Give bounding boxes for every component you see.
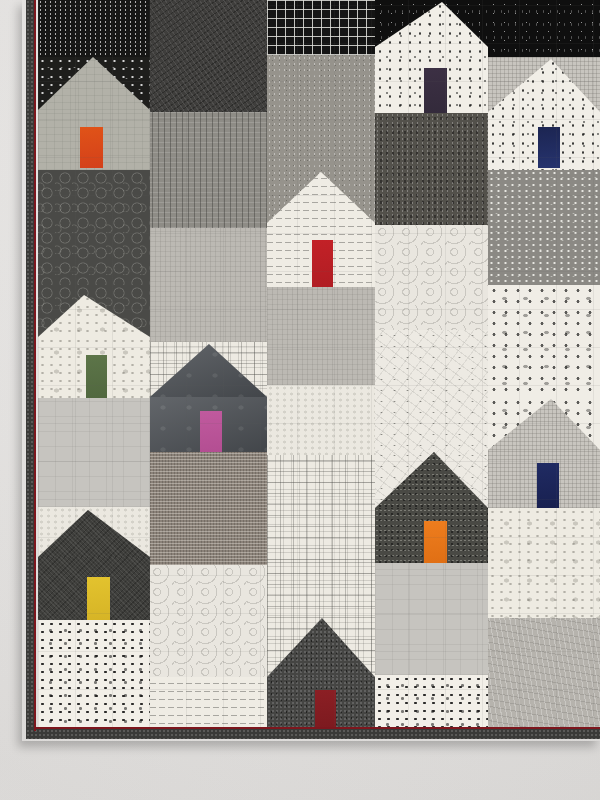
house-1-top-left-door bbox=[80, 127, 103, 168]
house-10-bottom-dark-red-roof bbox=[267, 618, 375, 677]
house-8-center-orange-door bbox=[424, 521, 447, 563]
binding-bottom bbox=[26, 729, 600, 739]
house-4-center-red-roof bbox=[267, 172, 375, 223]
house-1-top-left-roof bbox=[38, 57, 150, 110]
quilt-house-blocks bbox=[0, 0, 600, 800]
house-3-top-right-roof bbox=[488, 59, 600, 112]
house-9-bottom-left-yellow-roof bbox=[38, 510, 150, 557]
house-9-bottom-left-yellow-door bbox=[87, 577, 110, 620]
house-2-top-center-roof bbox=[375, 2, 488, 47]
binding-accent-stripe-left bbox=[34, 0, 36, 731]
house-6-center-pink-roof bbox=[150, 344, 267, 397]
house-2-top-center-door bbox=[424, 68, 447, 113]
quilt: Photograph of a modern patchwork quilt h… bbox=[0, 0, 600, 800]
house-10-bottom-dark-red-door bbox=[315, 690, 336, 728]
house-8-center-orange-roof bbox=[375, 452, 488, 508]
house-7-right-navy-roof bbox=[488, 399, 600, 450]
quilt-photo-scene: Photograph of a modern patchwork quilt h… bbox=[0, 0, 600, 800]
house-7-right-navy-door bbox=[537, 463, 559, 508]
house-3-top-right-door bbox=[538, 127, 560, 168]
house-5-left-green-door bbox=[86, 355, 107, 398]
house-4-center-red-door bbox=[312, 240, 333, 287]
house-6-center-pink-door bbox=[200, 411, 222, 452]
binding-accent-stripe-bottom bbox=[36, 727, 600, 729]
house-5-left-green-roof bbox=[38, 295, 150, 337]
